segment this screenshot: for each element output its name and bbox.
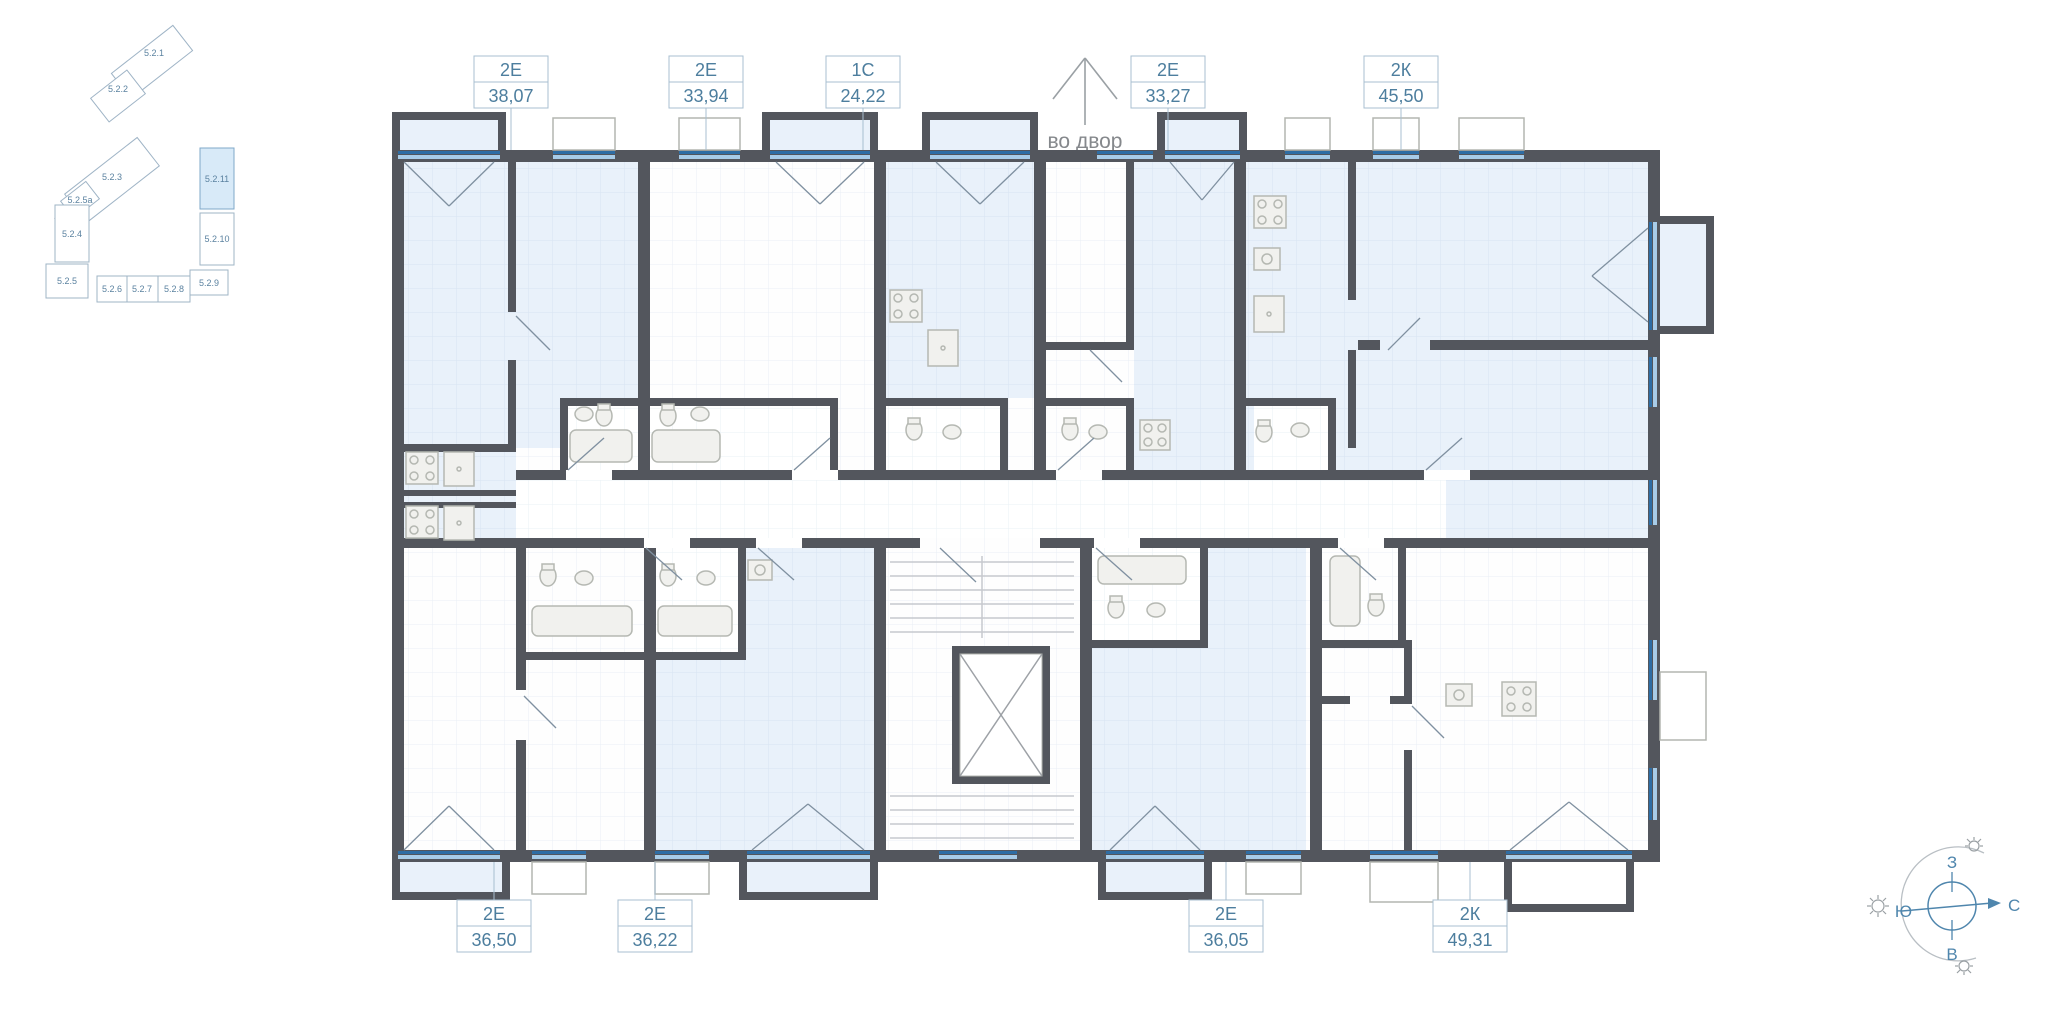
svg-text:2К: 2К [1460, 904, 1481, 924]
compass-needle [1988, 898, 2001, 909]
apartment-label-bottom-2[interactable]: 2Е 36,05 [1189, 900, 1263, 952]
courtyard-direction: во двор [1048, 58, 1123, 153]
svg-text:2Е: 2Е [1157, 60, 1179, 80]
apartment-label-top-4[interactable]: 2К 45,50 [1364, 56, 1438, 108]
svg-text:5.2.2: 5.2.2 [108, 84, 128, 94]
svg-text:38,07: 38,07 [488, 86, 533, 106]
svg-text:2Е: 2Е [1215, 904, 1237, 924]
svg-text:49,31: 49,31 [1447, 930, 1492, 950]
minimap: ул. Амундсена 5.2.1 5.2.2 5.2.3 5.2.5а 5… [46, 25, 234, 302]
apartment-label-top-0[interactable]: 2Е 38,07 [474, 56, 548, 108]
apartment-label-top-1[interactable]: 2Е 33,94 [669, 56, 743, 108]
svg-text:1С: 1С [851, 60, 874, 80]
svg-text:33,94: 33,94 [683, 86, 728, 106]
svg-text:2Е: 2Е [483, 904, 505, 924]
apartment-label-bottom-1[interactable]: 2Е 36,22 [618, 900, 692, 952]
compass-east: В [1946, 945, 1957, 964]
svg-text:24,22: 24,22 [840, 86, 885, 106]
elevator-shaft [952, 646, 1050, 784]
svg-text:5.2.10: 5.2.10 [204, 234, 229, 244]
apartment-label-bottom-3[interactable]: 2К 49,31 [1433, 900, 1507, 952]
svg-text:5.2.7: 5.2.7 [132, 284, 152, 294]
svg-text:2Е: 2Е [500, 60, 522, 80]
apartment-label-bottom-0[interactable]: 2Е 36,50 [457, 900, 531, 952]
svg-text:36,22: 36,22 [632, 930, 677, 950]
svg-text:5.2.3: 5.2.3 [102, 172, 122, 182]
floor-plan: 2Е 38,07 2Е 33,94 1С 24,22 2Е 33,27 2К [392, 56, 1714, 952]
apartment-label-top-2[interactable]: 1С 24,22 [826, 56, 900, 108]
svg-text:5.2.5а: 5.2.5а [67, 195, 92, 205]
floorplan-canvas: ул. Амундсена 5.2.1 5.2.2 5.2.3 5.2.5а 5… [0, 0, 2048, 1024]
svg-text:5.2.8: 5.2.8 [164, 284, 184, 294]
compass-west: З [1947, 853, 1957, 872]
svg-text:45,50: 45,50 [1378, 86, 1423, 106]
svg-text:36,50: 36,50 [471, 930, 516, 950]
compass-north: С [2008, 896, 2020, 915]
svg-text:5.2.11: 5.2.11 [205, 174, 229, 184]
compass-south: Ю [1895, 902, 1912, 921]
svg-text:5.2.5: 5.2.5 [57, 276, 77, 286]
svg-text:5.2.6: 5.2.6 [102, 284, 122, 294]
svg-text:5.2.9: 5.2.9 [199, 278, 219, 288]
apartment-label-top-3[interactable]: 2Е 33,27 [1131, 56, 1205, 108]
floorplan-page: ул. Амундсена 5.2.1 5.2.2 5.2.3 5.2.5а 5… [0, 0, 2048, 1024]
up-arrow-icon [1053, 58, 1117, 125]
svg-text:5.2.4: 5.2.4 [62, 229, 82, 239]
compass: З В Ю С [1867, 837, 2020, 975]
svg-text:2Е: 2Е [695, 60, 717, 80]
svg-text:2Е: 2Е [644, 904, 666, 924]
svg-text:36,05: 36,05 [1203, 930, 1248, 950]
svg-text:2К: 2К [1391, 60, 1412, 80]
courtyard-label: во двор [1048, 130, 1123, 153]
svg-text:5.2.1: 5.2.1 [144, 48, 164, 58]
svg-text:33,27: 33,27 [1145, 86, 1190, 106]
